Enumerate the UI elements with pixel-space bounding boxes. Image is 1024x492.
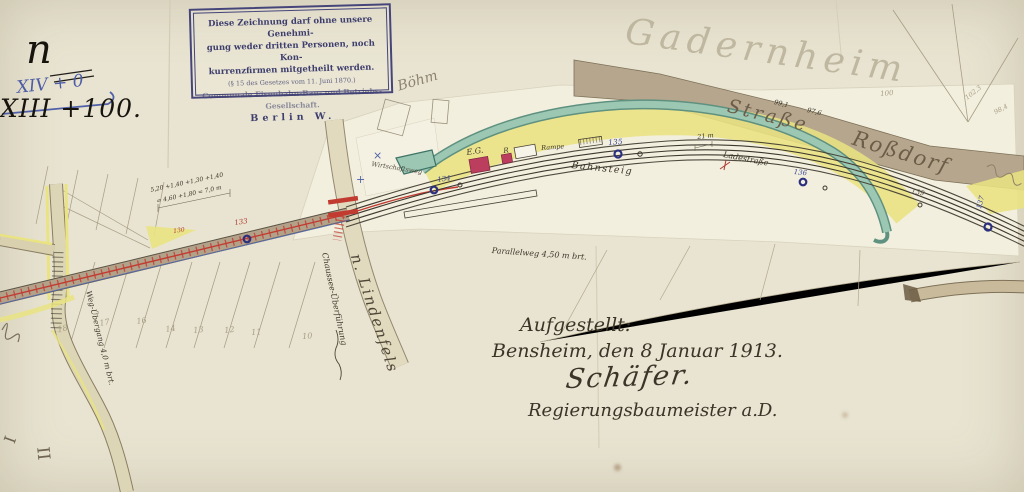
parcel-number: 14: [165, 325, 176, 334]
station-building: [469, 156, 490, 173]
blue-cross-mark: ×: [373, 150, 382, 161]
marker-136: 136: [793, 169, 807, 177]
corner-letter: n: [26, 30, 52, 70]
signature-name: Schäfer.: [564, 362, 695, 394]
dark-blob: [903, 284, 921, 302]
label-rampe: Rampe: [541, 143, 564, 151]
marker-135: 135: [608, 138, 623, 146]
faint-cursive-note: [2, 323, 19, 342]
section-mark-2: II: [33, 446, 51, 461]
parcel-number: 11: [251, 328, 262, 337]
company-stamp: Diese Zeichnung darf ohne unsere Genehmi…: [189, 3, 393, 99]
scanned-railway-plan: n XIV + 0 XIII +100. Diese Zeichnung dar…: [0, 0, 1024, 492]
yellow-wedge: [146, 226, 196, 249]
road-stub: [910, 286, 1024, 296]
paper-crease: [168, 0, 170, 168]
parcel-number: 10: [302, 332, 313, 341]
signature-place-date: Bensheim, den 8 Januar 1913.: [492, 342, 783, 361]
signature-title: Regierungsbaumeister a.D.: [528, 402, 777, 420]
label-shed: R: [503, 147, 509, 155]
elevation-value: 100: [880, 90, 894, 98]
parcel-number: 16: [136, 317, 147, 326]
parcel-number: 13: [193, 326, 204, 335]
measurement-width: 21 m: [697, 132, 714, 140]
blue-plus-mark: +: [356, 174, 365, 185]
side-road: [0, 240, 54, 250]
paper-stain: [614, 464, 621, 471]
signature-aufgestellt: Aufgestellt:: [520, 316, 631, 335]
parcel-number: 12: [224, 326, 235, 335]
revision-old: XIII +100.: [0, 96, 142, 121]
paper-stain: [842, 412, 848, 418]
shed-building: [501, 153, 512, 164]
